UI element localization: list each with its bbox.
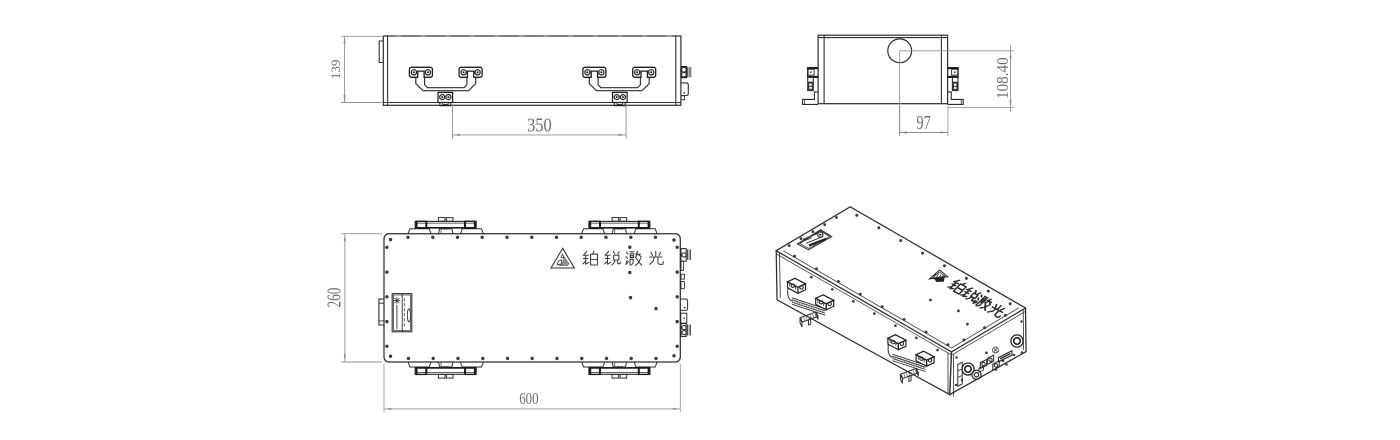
svg-text:108.40: 108.40 <box>994 57 1012 99</box>
svg-text:97: 97 <box>916 110 930 133</box>
svg-text:350: 350 <box>527 114 552 136</box>
svg-text:260: 260 <box>323 288 345 308</box>
svg-text:600: 600 <box>519 390 538 408</box>
svg-text:139: 139 <box>328 60 343 80</box>
